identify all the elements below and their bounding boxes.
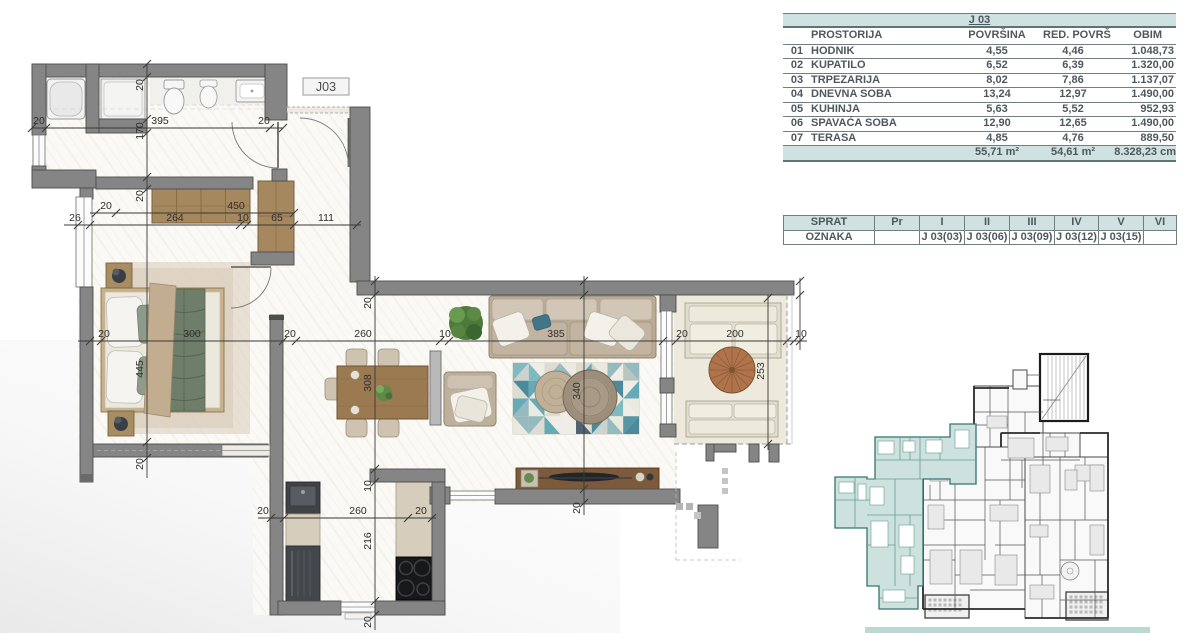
svg-text:308: 308 (362, 374, 374, 392)
svg-text:200: 200 (726, 328, 744, 340)
svg-text:20: 20 (362, 297, 374, 309)
svg-text:216: 216 (362, 532, 374, 550)
svg-text:170: 170 (134, 122, 146, 140)
svg-text:445: 445 (134, 360, 146, 378)
svg-text:450: 450 (227, 200, 245, 212)
svg-text:253: 253 (755, 362, 767, 380)
svg-text:20: 20 (33, 115, 45, 127)
svg-text:20: 20 (134, 458, 146, 470)
svg-text:20: 20 (258, 115, 270, 127)
svg-text:20: 20 (100, 200, 112, 212)
svg-text:340: 340 (571, 382, 583, 400)
svg-text:20: 20 (571, 502, 583, 514)
svg-text:10: 10 (439, 328, 451, 340)
svg-text:65: 65 (271, 212, 283, 224)
svg-text:J03: J03 (316, 80, 336, 94)
svg-text:385: 385 (547, 328, 565, 340)
svg-text:20: 20 (284, 328, 296, 340)
svg-text:395: 395 (151, 115, 169, 127)
svg-text:20: 20 (134, 190, 146, 202)
svg-text:20: 20 (98, 328, 110, 340)
svg-text:20: 20 (415, 505, 427, 517)
svg-text:260: 260 (349, 505, 367, 517)
svg-text:10: 10 (795, 328, 807, 340)
svg-text:20: 20 (134, 79, 146, 91)
svg-text:300: 300 (183, 328, 201, 340)
svg-text:260: 260 (354, 328, 372, 340)
svg-text:20: 20 (676, 328, 688, 340)
svg-text:26: 26 (69, 212, 81, 224)
svg-text:10: 10 (362, 480, 374, 492)
svg-text:111: 111 (318, 212, 334, 224)
svg-text:20: 20 (257, 505, 269, 517)
svg-text:20: 20 (362, 616, 374, 628)
svg-text:264: 264 (166, 212, 184, 224)
svg-text:10: 10 (237, 212, 249, 224)
